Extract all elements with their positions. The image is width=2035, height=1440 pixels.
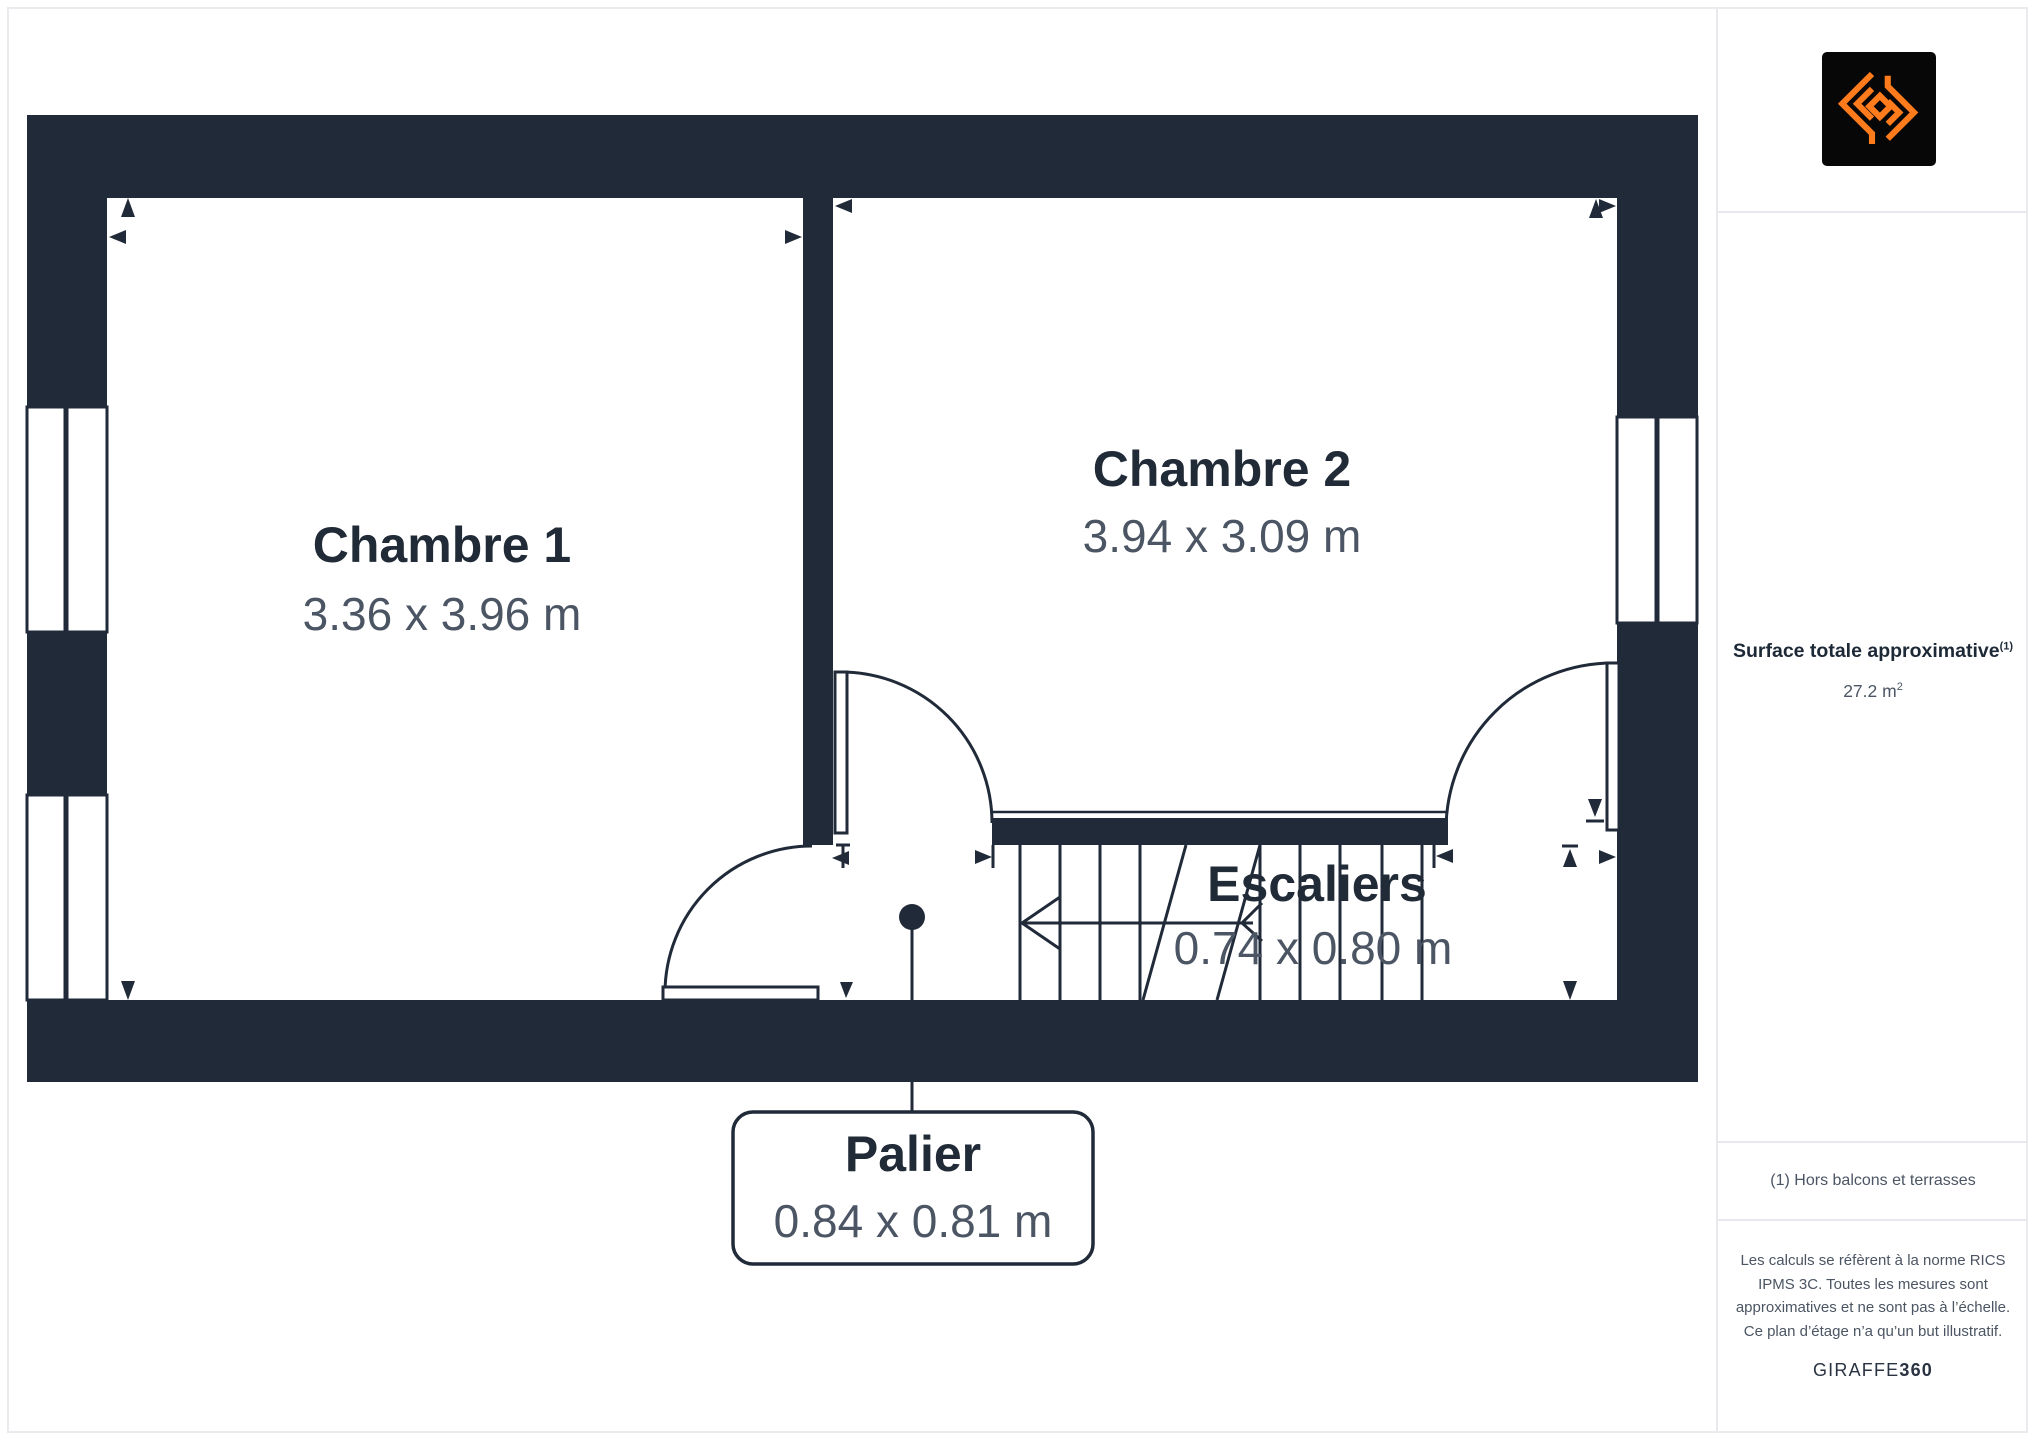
dim-arrow-down: [1563, 981, 1577, 1000]
windows: [27, 407, 1697, 1000]
surface-total-label-text: Surface totale approximative: [1733, 640, 2000, 662]
stairs-dimensions: 0.74 x 0.80 m: [1174, 922, 1453, 974]
dim-arrow-right: [1599, 850, 1616, 864]
room-dimensions: 3.36 x 3.96 m: [303, 588, 582, 640]
dim-arrow-up: [121, 198, 135, 217]
landing-dimensions: 0.84 x 0.81 m: [774, 1195, 1053, 1247]
disclaimer-text: Les calculs se réfèrent à la norme RICS …: [1727, 1249, 2019, 1344]
surface-total-label: Surface totale approximative(1): [1718, 640, 2028, 663]
door-swing-arc: [665, 846, 812, 993]
giraffe360-emblem-icon: [1830, 60, 1928, 158]
surface-value-text: 27.2 m: [1843, 681, 1897, 701]
stairs-name: Escaliers: [1207, 856, 1427, 912]
dim-arrow-left: [109, 230, 126, 244]
room-name: Chambre 2: [1093, 441, 1351, 497]
dim-arrow-right: [1599, 199, 1616, 213]
dim-arrow-left: [835, 199, 852, 213]
surface-value-exponent: 2: [1897, 681, 1903, 693]
dim-arrow-down: [840, 982, 853, 998]
dim-arrow-down: [1588, 799, 1602, 817]
wall-top: [27, 115, 1698, 198]
room-dimensions: 3.94 x 3.09 m: [1083, 510, 1362, 562]
palier-leader-dot: [899, 904, 925, 930]
giraffe360-logo: [1822, 52, 1936, 166]
door-swing-arc: [1446, 663, 1613, 830]
dim-arrow-down: [121, 981, 135, 1000]
sidebar-section-divider: [1718, 1219, 2028, 1221]
sidebar-section-divider: [1718, 211, 2028, 213]
door-leaf: [663, 987, 818, 1000]
sidebar-section-divider: [1718, 1141, 2028, 1143]
door-swing-arc: [841, 672, 992, 823]
surface-footnote-marker: (1): [2000, 641, 2013, 653]
surface-total-value: 27.2 m2: [1718, 681, 2028, 702]
dim-arrow-left: [832, 851, 849, 865]
room-name: Chambre 1: [313, 517, 571, 573]
wall-stairs: [992, 818, 1448, 845]
door-leaf: [835, 672, 847, 833]
brand-primary: GIRAFFE: [1813, 1360, 1899, 1380]
wall-interior-vertical: [803, 198, 833, 845]
dim-arrow-up: [1563, 849, 1577, 867]
door-leaf: [1607, 663, 1619, 830]
landing-name: Palier: [845, 1126, 981, 1182]
brand-suffix: 360: [1899, 1360, 1933, 1380]
wall-bottom: [27, 1000, 1698, 1082]
sidebar: [1717, 0, 2035, 1440]
dim-arrow-left: [1436, 849, 1453, 863]
dim-arrow-right: [785, 230, 802, 244]
surface-footnote: (1) Hors balcons et terrasses: [1718, 1172, 2028, 1190]
floorplan-page: Chambre 1 3.36 x 3.96 m Chambre 2 3.94 x…: [0, 0, 2035, 1440]
brand-wordmark: GIRAFFE360: [1718, 1360, 2028, 1381]
dim-arrow-right: [975, 850, 992, 864]
